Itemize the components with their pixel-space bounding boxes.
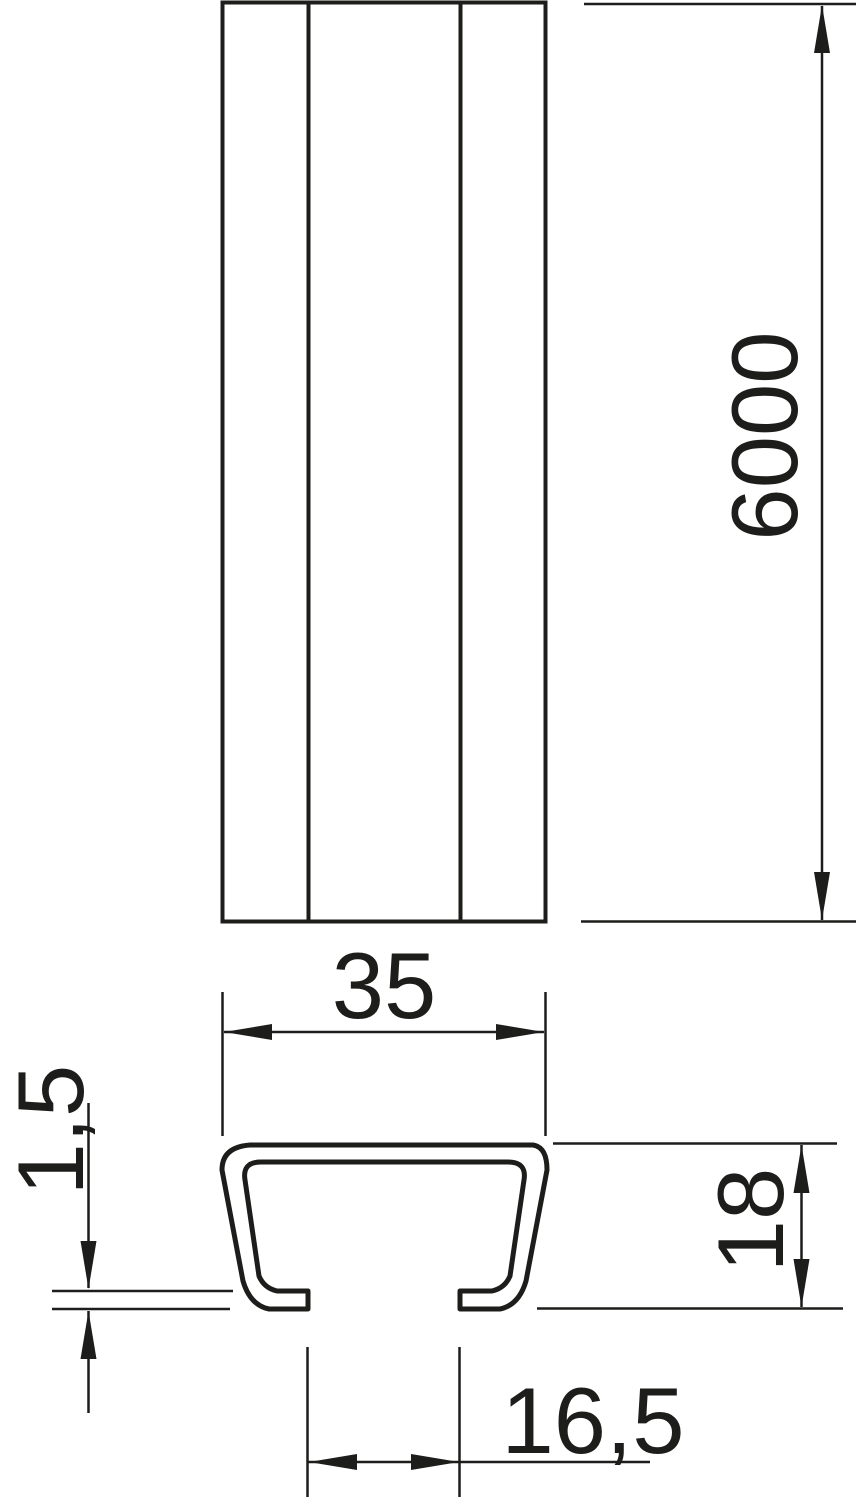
arrowhead-down-icon [814,872,830,920]
opening-dimension-label: 16,5 [502,1368,685,1473]
height-dimension: 18 [537,1144,843,1309]
front-view [223,3,546,922]
arrowhead-left-icon [309,1454,357,1470]
arrowhead-down-icon [81,1241,97,1289]
arrowhead-up-icon [814,5,830,53]
thickness-dimension: 1,5 [0,1065,233,1413]
rail-body-outline [223,3,546,922]
width-dimension: 35 [223,933,546,1136]
arrowhead-right-icon [496,1024,544,1040]
thickness-dimension-label: 1,5 [0,1065,103,1196]
arrowhead-left-icon [224,1024,272,1040]
section-view [222,1145,547,1309]
width-dimension-label: 35 [332,933,437,1038]
drawing-canvas: 6000 35 1,5 [0,0,859,1500]
length-dimension-label: 6000 [712,331,817,540]
opening-dimension: 16,5 [308,1347,685,1497]
dimension-drawing: 6000 35 1,5 [0,0,859,1500]
height-dimension-label: 18 [698,1168,803,1273]
rail-cross-section-profile [222,1145,547,1309]
arrowhead-right-icon [411,1454,459,1470]
arrowhead-up-icon [81,1311,97,1359]
length-dimension: 6000 [581,4,856,922]
